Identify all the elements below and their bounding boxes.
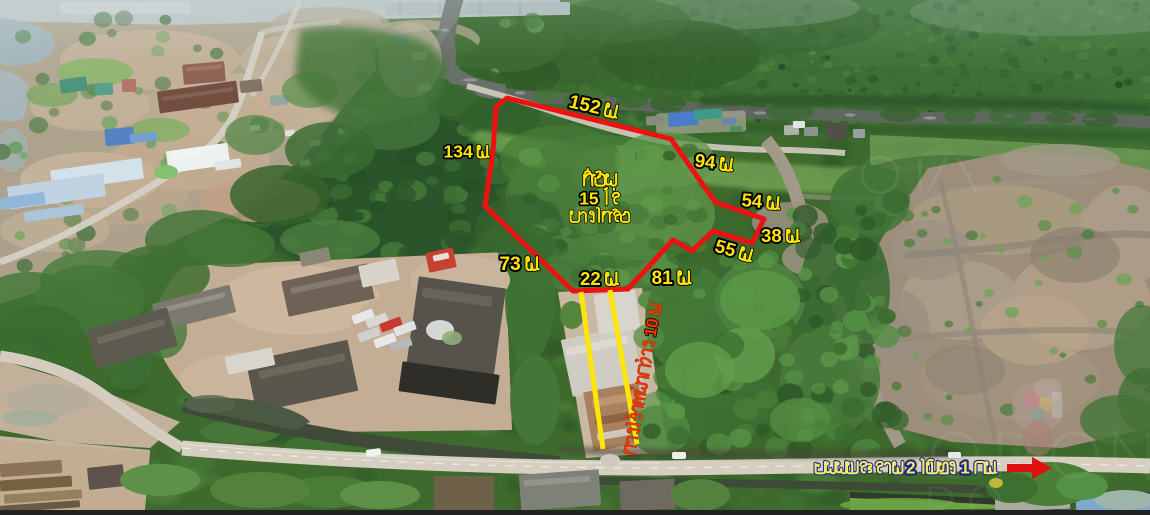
svg-text:10: 10: [642, 317, 663, 338]
svg-text:73: 73: [500, 254, 521, 275]
svg-text:81: 81: [652, 268, 674, 289]
svg-text:15: 15: [579, 188, 599, 208]
svg-text:134: 134: [444, 141, 473, 161]
svg-text:22: 22: [580, 268, 601, 289]
svg-text:2: 2: [906, 457, 916, 477]
svg-text:38: 38: [761, 225, 782, 246]
svg-text:1: 1: [960, 457, 970, 477]
svg-text:94: 94: [694, 149, 718, 172]
svg-text:54: 54: [741, 189, 764, 212]
